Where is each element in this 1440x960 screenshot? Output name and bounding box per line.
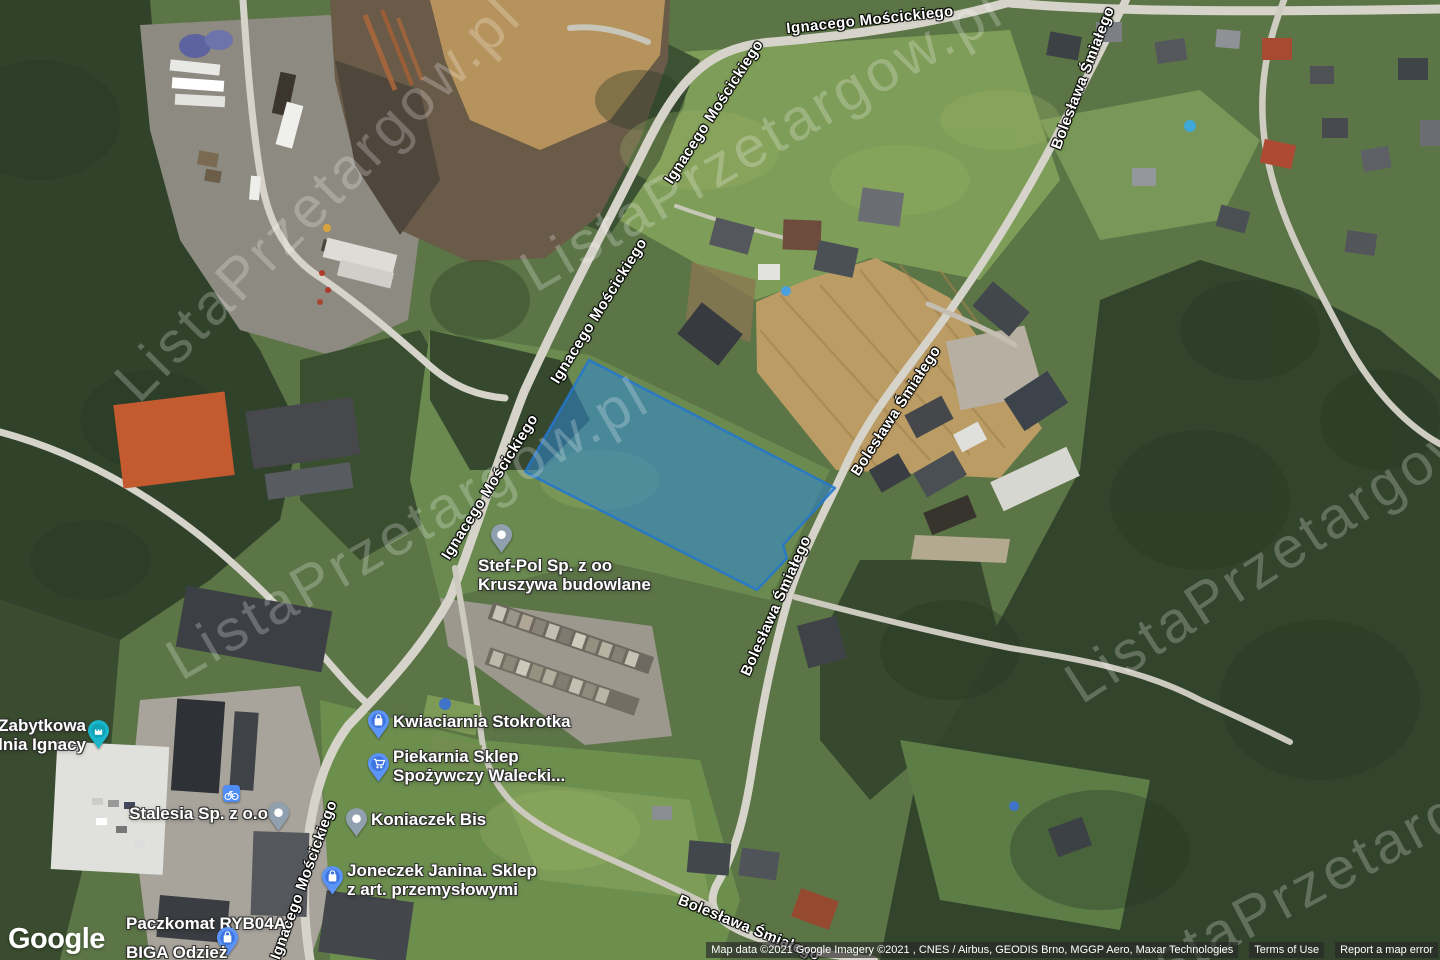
- report-map-error-link[interactable]: Report a map error: [1335, 942, 1438, 958]
- shopping-bag-pin-icon[interactable]: [367, 709, 390, 740]
- google-logo[interactable]: Google: [8, 923, 105, 956]
- poi-label-koniaczek[interactable]: Koniaczek Bis: [371, 810, 486, 829]
- poi-label-biga[interactable]: BIGA Odzież: [126, 943, 227, 960]
- attribution-bar: Map data ©2021 Google Imagery ©2021 , CN…: [706, 942, 1438, 958]
- poi-label-joneczek[interactable]: Joneczek Janina. Sklep z art. przemysłow…: [347, 861, 537, 899]
- map-data-attribution: Map data ©2021 Google Imagery ©2021 , CN…: [706, 942, 1238, 958]
- dot-pin-icon[interactable]: [345, 807, 368, 838]
- shopping-bag-pin-icon[interactable]: [321, 865, 344, 896]
- poi-label-zabytkowa-kopalnia[interactable]: Zabytkowa Kopalnia Ignacy: [0, 716, 86, 754]
- poi-label-stalesia[interactable]: Stalesia Sp. z o.o: [120, 804, 268, 823]
- dot-pin-icon[interactable]: [267, 801, 290, 832]
- dot-pin-icon[interactable]: [490, 523, 513, 554]
- satellite-map[interactable]: ListaPrzetargow.pl ListaPrzetargow.pl Li…: [0, 0, 1440, 960]
- poi-label-piekarnia[interactable]: Piekarnia Sklep Spożywczy Walecki...: [393, 747, 565, 785]
- castle-pin-icon[interactable]: [87, 719, 110, 750]
- poi-label-stef-pol[interactable]: Stef-Pol Sp. z oo Kruszywa budowlane: [478, 556, 651, 594]
- bicycle-icon[interactable]: [223, 785, 240, 802]
- poi-label-paczkomat[interactable]: Paczkomat RYB04A: [126, 914, 286, 933]
- poi-label-kwiaciarnia[interactable]: Kwiaciarnia Stokrotka: [393, 712, 571, 731]
- terms-of-use-link[interactable]: Terms of Use: [1249, 942, 1324, 958]
- shopping-cart-pin-icon[interactable]: [367, 752, 390, 783]
